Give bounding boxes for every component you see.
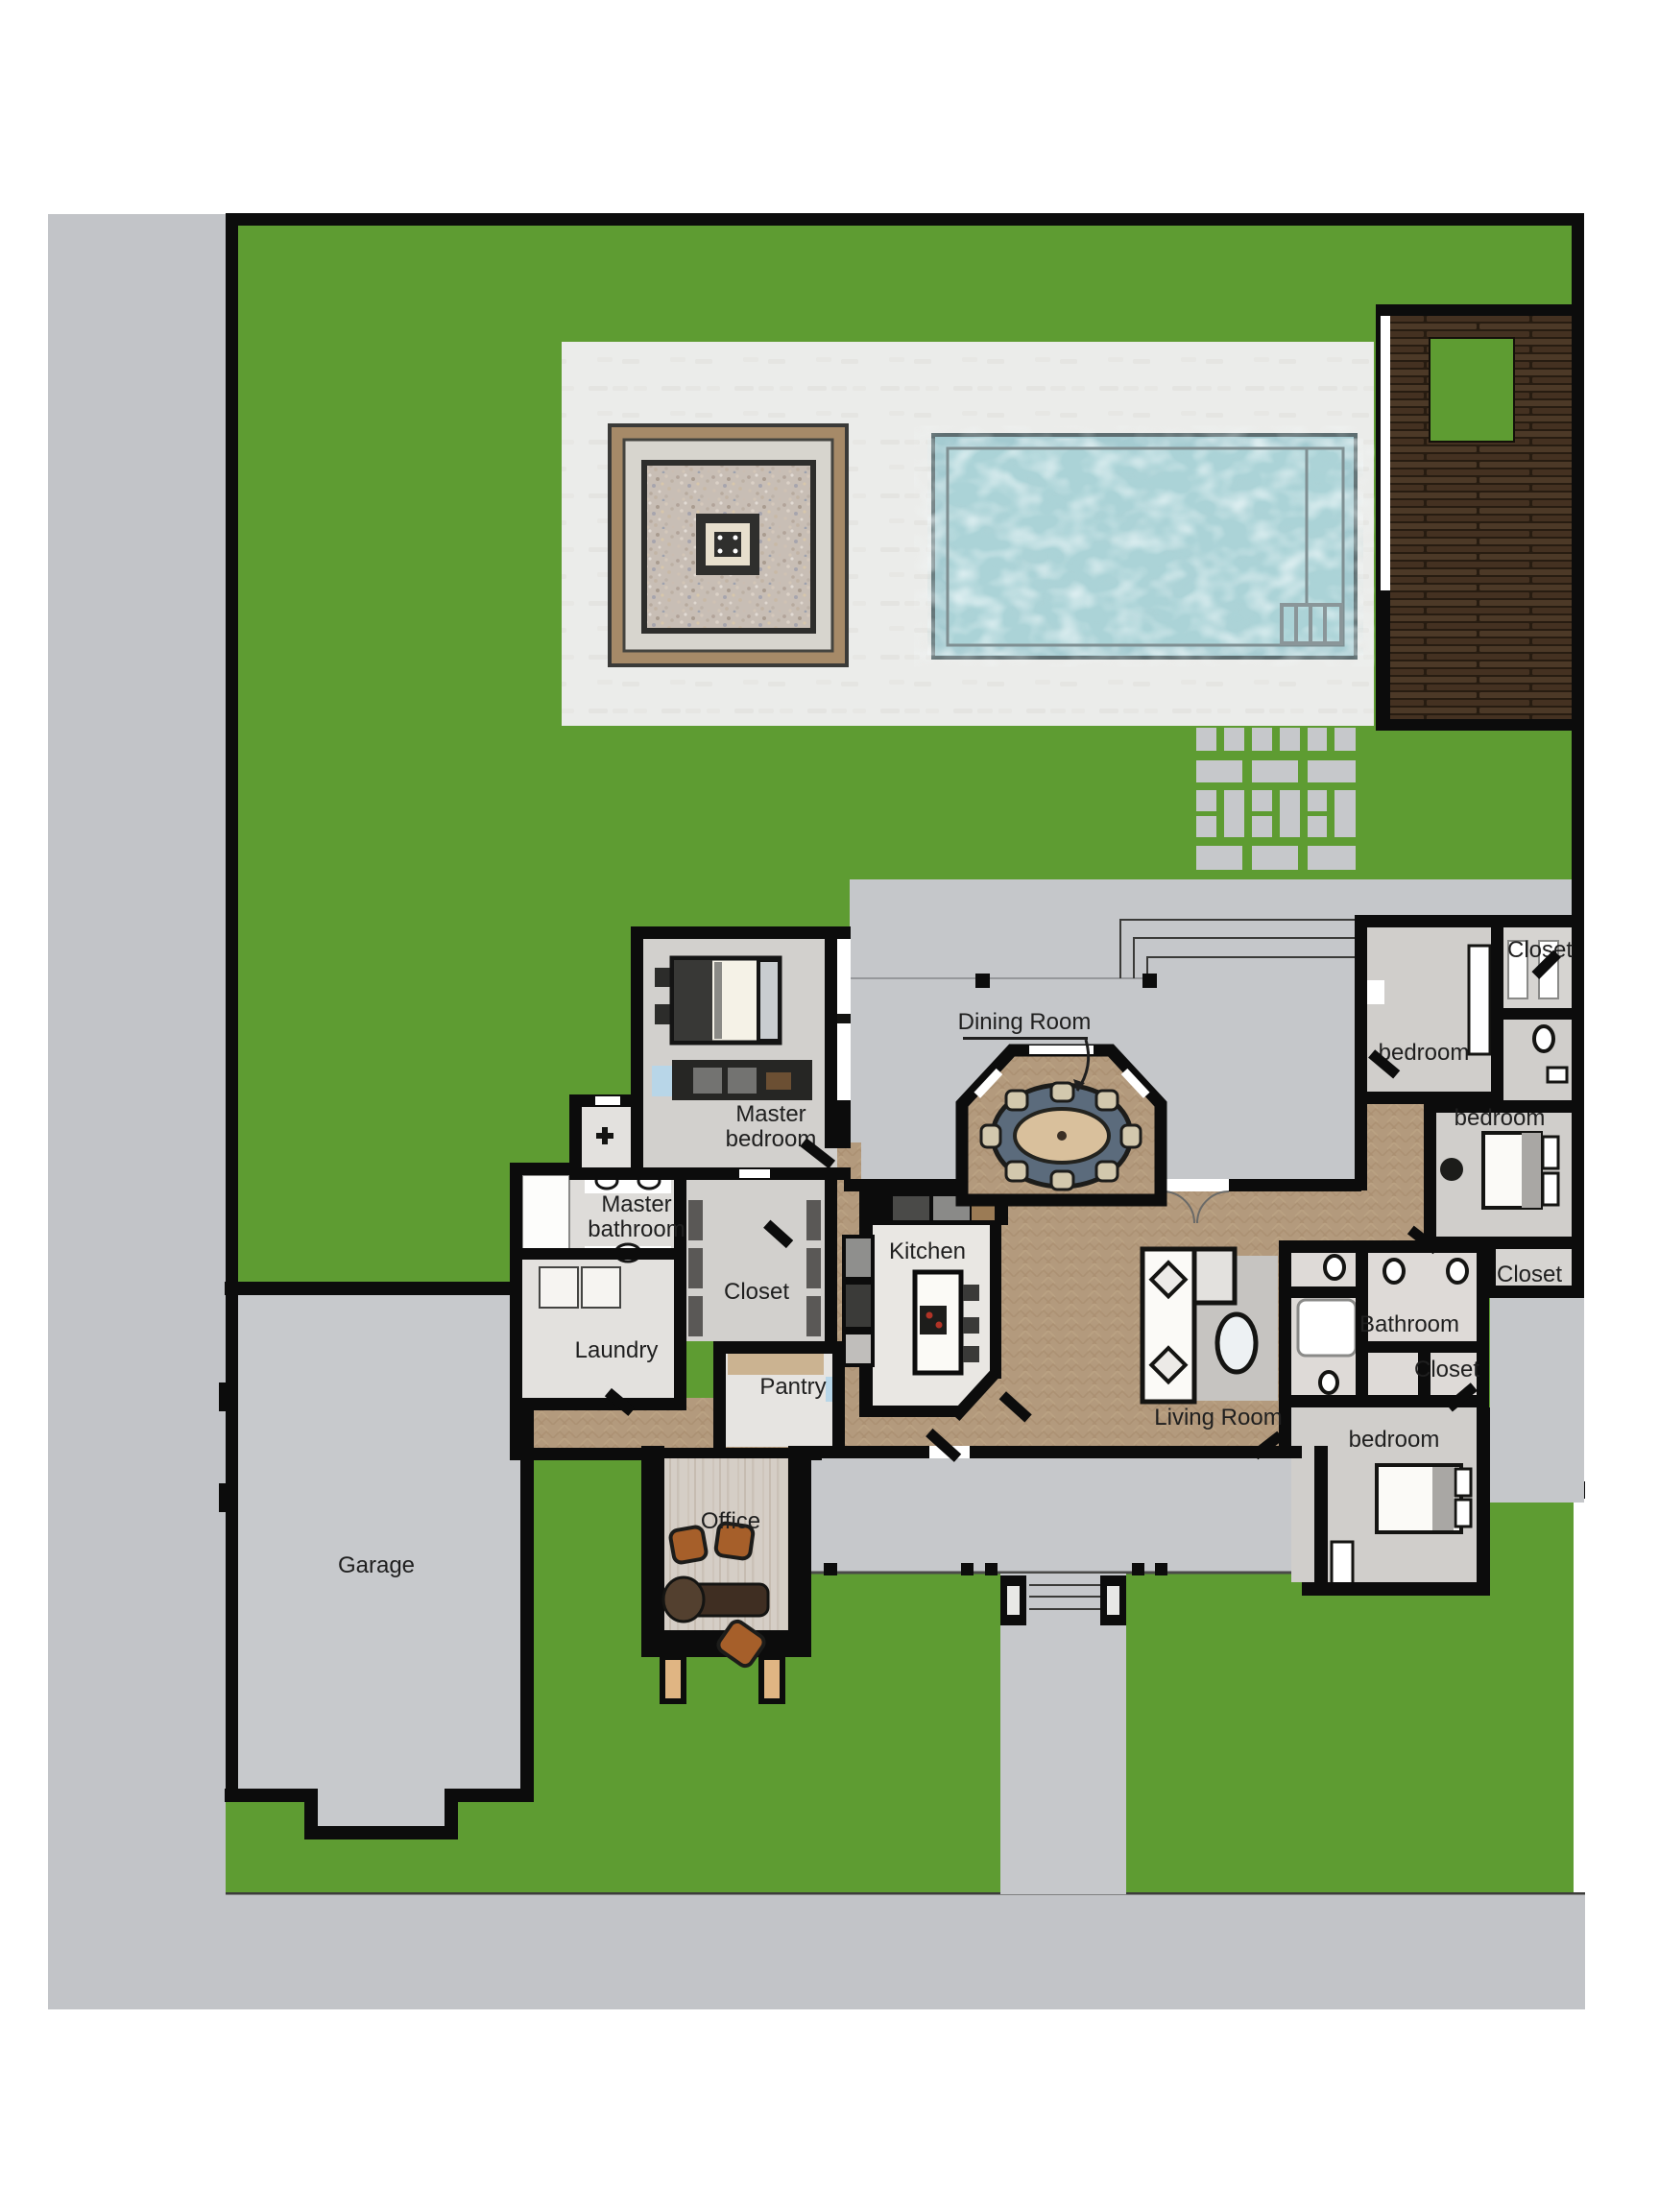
svg-text:Master: Master xyxy=(735,1101,805,1127)
svg-text:bedroom: bedroom xyxy=(1349,1427,1440,1453)
svg-text:Bathroom: Bathroom xyxy=(1359,1311,1459,1337)
svg-text:Master: Master xyxy=(601,1191,671,1217)
svg-text:Closet: Closet xyxy=(724,1279,789,1305)
svg-text:Dining Room: Dining Room xyxy=(958,1009,1092,1035)
svg-text:Laundry: Laundry xyxy=(575,1337,659,1363)
svg-text:Kitchen: Kitchen xyxy=(889,1238,966,1264)
svg-text:Living Room: Living Room xyxy=(1154,1405,1282,1431)
svg-text:Office: Office xyxy=(701,1508,760,1534)
svg-text:Closet: Closet xyxy=(1507,937,1573,963)
svg-text:Closet: Closet xyxy=(1414,1357,1479,1382)
svg-text:bedroom: bedroom xyxy=(1455,1105,1546,1131)
svg-text:Closet: Closet xyxy=(1497,1262,1562,1287)
svg-text:Pantry: Pantry xyxy=(759,1374,826,1400)
svg-text:bathroom: bathroom xyxy=(588,1216,685,1242)
svg-text:Garage: Garage xyxy=(338,1552,415,1578)
svg-text:bedroom: bedroom xyxy=(1379,1040,1470,1066)
